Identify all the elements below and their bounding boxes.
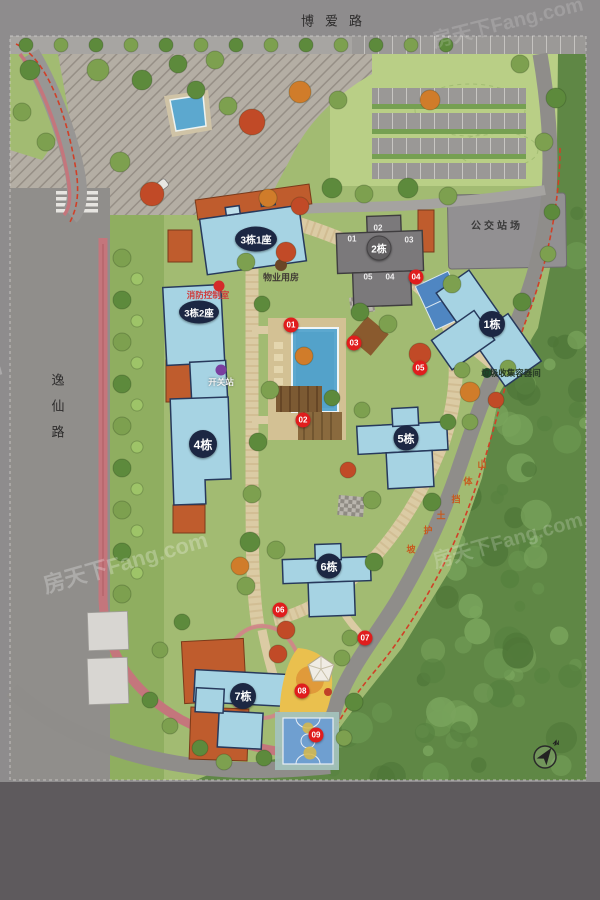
amenity-marker-06: 06: [273, 603, 288, 618]
basketball-court: [275, 712, 339, 770]
entry-water-feature: [170, 95, 206, 131]
slope-label-char: 土: [436, 509, 445, 522]
amenity-marker-09: 09: [309, 728, 324, 743]
property-house-label: 物业用房: [263, 274, 299, 283]
building-label-6: 6栋: [317, 554, 342, 579]
bus-station-label: 公交站场: [471, 222, 523, 232]
building-label-7: 7栋: [230, 683, 256, 709]
slope-label-char: 坡: [406, 543, 415, 556]
footer-bar: 赢家 01中心水池 02休闲景观廊架 03林下休闲广场 04休闲运动广场 05健…: [0, 782, 600, 900]
slope-label-char: 挡: [451, 493, 460, 506]
switch-station-label: 开关站: [208, 378, 234, 387]
building-label-5: 5栋: [394, 426, 419, 451]
garbage-room-label: 垃圾收集容器间: [481, 369, 541, 378]
site-plan-map: [0, 0, 600, 782]
slope-label-char: 体: [463, 475, 472, 488]
building-label-2: 2栋: [367, 236, 392, 261]
amenity-marker-08: 08: [295, 684, 310, 699]
parking-rows: [372, 88, 526, 179]
building2-unit: 01: [348, 235, 357, 244]
amenity-marker-05: 05: [413, 361, 428, 376]
building2-unit: 03: [405, 236, 414, 245]
building2-unit: 02: [374, 224, 383, 233]
fire-control-label: 消防控制室: [187, 291, 230, 300]
slope-label-char: 护: [423, 524, 432, 537]
building2-unit: 04: [386, 273, 395, 282]
building-label-3-2: 3栋2座: [179, 301, 219, 324]
amenity-marker-03: 03: [347, 336, 362, 351]
switch-station-dot: [216, 365, 227, 376]
amenity-marker-04: 04: [409, 270, 424, 285]
amenity-marker-02: 02: [296, 413, 311, 428]
site-plan-page: 博爱路 逸仙路 公交站场 物业用房 消防控制室 开关站 垃圾收集容器间 山 体 …: [0, 0, 600, 900]
slope-label-char: 山: [477, 458, 486, 471]
top-road-label: 博爱路: [301, 15, 373, 28]
compass-north-label: N: [555, 741, 559, 747]
building-label-1: 1栋: [479, 311, 505, 337]
building-label-4: 4栋: [189, 430, 217, 458]
building2-unit: 05: [364, 273, 373, 282]
amenity-marker-01: 01: [284, 318, 299, 333]
building-label-3-1: 3栋1座: [235, 227, 277, 252]
left-road-label: 逸仙路: [51, 373, 64, 451]
amenity-marker-07: 07: [358, 631, 373, 646]
